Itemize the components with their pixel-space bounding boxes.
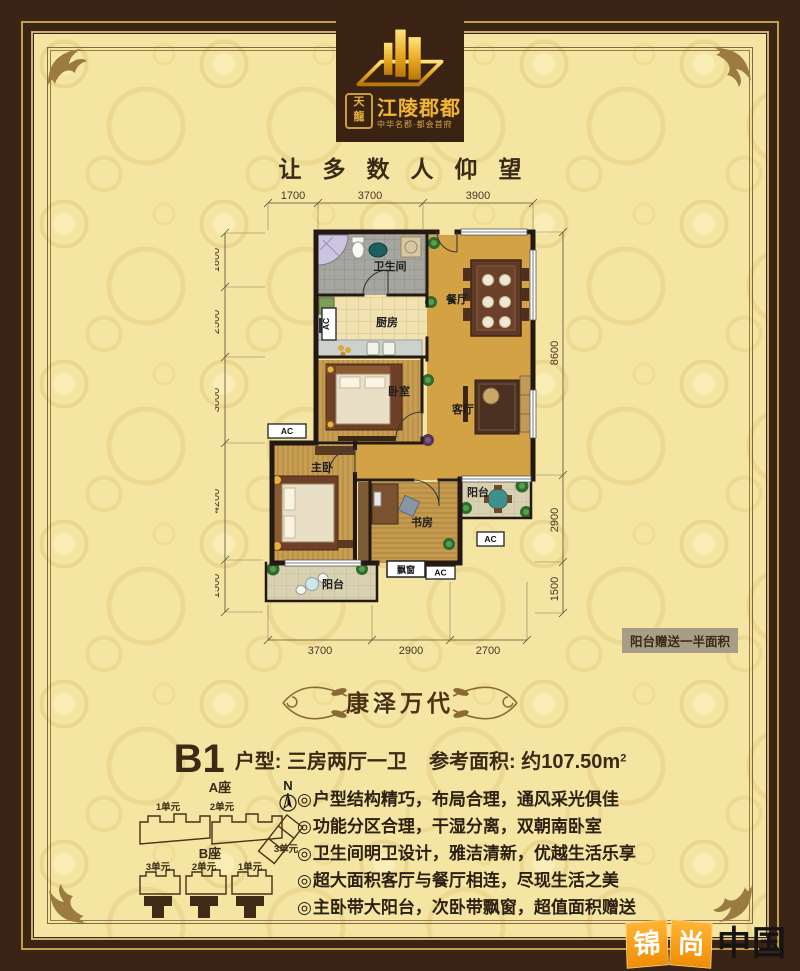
dim-top-3: 3900: [466, 190, 490, 202]
unit-type: 户型: 三房两厅一卫: [235, 751, 407, 773]
block-b-unit-3: 1单元: [238, 861, 263, 873]
dim-left-5: 1500: [215, 574, 222, 598]
compass-north-label: N: [283, 778, 292, 793]
room-label-balcony-right: 阳台: [467, 485, 489, 499]
feature-bullet-icon: ◎: [297, 898, 312, 917]
feature-item: ◎功能分区合理，干湿分离，双朝南卧室: [297, 813, 636, 840]
dim-right-2: 2900: [549, 508, 561, 532]
corner-ornament-icon: [711, 45, 755, 89]
room-label-balcony-left: 阳台: [322, 577, 344, 591]
ac-label: AC: [281, 426, 293, 436]
block-a-unit-3: 3单元: [274, 843, 299, 855]
corner-ornament-icon: [45, 45, 89, 89]
section-title-ornament: 康泽万代: [275, 674, 525, 732]
slogan: 让多数人仰望: [0, 150, 800, 184]
feature-bullet-icon: ◎: [297, 844, 312, 863]
room-label-living: 客厅: [451, 402, 474, 416]
feature-item: ◎超大面积客厅与餐厅相连，尽现生活之美: [297, 867, 636, 894]
feature-bullet-icon: ◎: [297, 817, 312, 836]
dim-right-1: 8600: [549, 341, 561, 365]
room-label-master: 主卧: [311, 460, 333, 474]
block-a-label: A座: [209, 780, 231, 795]
dim-left-2: 2500: [215, 310, 222, 334]
unit-code: B1: [174, 737, 225, 781]
dim-right-3: 1500: [549, 577, 561, 601]
feature-bullet-icon: ◎: [297, 790, 312, 809]
feature-text: 户型结构精巧，布局合理，通风采光俱佳: [313, 790, 619, 809]
corner-ornament-icon: [711, 882, 755, 926]
logo-banner: 天 龍 江陵郡都 中华名郡·都会首府: [336, 0, 464, 142]
highlighted-units: [144, 896, 264, 918]
dim-left-3: 3000: [215, 388, 222, 412]
dim-left-4: 4200: [215, 489, 222, 513]
dim-bottom-3: 2700: [476, 645, 500, 657]
ac-label: AC: [321, 318, 331, 330]
room-label-kitchen: 厨房: [376, 315, 398, 329]
brand-subtitle: 中华名郡·都会首府: [377, 119, 463, 130]
feature-text: 超大面积客厅与餐厅相连，尽现生活之美: [313, 871, 619, 890]
unit-area: 参考面积: 约107.50m: [429, 751, 620, 773]
block-a-unit-2: 2单元: [210, 801, 235, 813]
room-label-dining: 餐厅: [445, 292, 468, 306]
ac-label: AC: [434, 568, 446, 578]
corner-ornament-icon: [45, 882, 89, 926]
feature-item: ◎卫生间明卫设计，雅洁清新，优越生活乐享: [297, 840, 636, 867]
site-plan: N A座 1单元 2单元 3单元 B座 3单元 2单元 1单元: [128, 778, 308, 936]
unit-area-sup: 2: [620, 753, 626, 765]
watermark-rest: 中国: [717, 922, 787, 966]
watermark: 锦 尚 中国: [626, 921, 787, 967]
feature-text: 主卧带大阳台，次卧带飘窗，超值面积赠送: [313, 898, 636, 917]
dim-bottom-1: 3700: [308, 645, 332, 657]
block-b-label: B座: [199, 846, 221, 861]
buildings-logo-icon: [352, 22, 448, 90]
dim-left-1: 1800: [215, 248, 222, 272]
dim-top-2: 3700: [358, 190, 382, 202]
room-label-study: 书房: [411, 515, 433, 529]
feature-text: 卫生间明卫设计，雅洁清新，优越生活乐享: [313, 844, 636, 863]
poster: 天 龍 江陵郡都 中华名郡·都会首府 让多数人仰望: [0, 0, 800, 971]
room-label-bay-window: 飘窗: [397, 564, 415, 575]
feature-item: ◎主卧带大阳台，次卧带飘窗，超值面积赠送: [297, 894, 636, 921]
balcony-note: 阳台赠送一半面积: [622, 628, 738, 653]
watermark-char-1: 锦: [625, 919, 669, 969]
watermark-char-2: 尚: [669, 919, 713, 969]
dim-top-1: 1700: [281, 190, 305, 202]
brand-seal: 天 龍: [345, 93, 373, 129]
compass: N: [280, 778, 296, 811]
room-label-bathroom: 卫生间: [374, 259, 407, 273]
section-title: 康泽万代: [346, 690, 454, 716]
ac-label: AC: [484, 534, 496, 544]
floor-plan: AC AC AC AC 卫生间 厨房 餐厅 卧室 客厅 主卧 书房 阳台 阳台 …: [215, 190, 575, 665]
seal-char-top: 天: [347, 95, 371, 110]
feature-item: ◎户型结构精巧，布局合理，通风采光俱佳: [297, 786, 636, 813]
block-b-unit-2: 2单元: [192, 861, 217, 873]
block-a-unit-1: 1单元: [156, 801, 181, 813]
feature-list: ◎户型结构精巧，布局合理，通风采光俱佳 ◎功能分区合理，干湿分离，双朝南卧室 ◎…: [297, 786, 636, 921]
seal-char-bottom: 龍: [347, 110, 371, 125]
unit-info: B1户型: 三房两厅一卫参考面积: 约107.50m2: [0, 737, 800, 782]
feature-text: 功能分区合理，干湿分离，双朝南卧室: [313, 817, 602, 836]
brand-name: 江陵郡都: [377, 92, 463, 121]
room-label-bedroom: 卧室: [388, 384, 410, 398]
block-b-unit-1: 3单元: [146, 861, 171, 873]
dim-bottom-2: 2900: [399, 645, 423, 657]
feature-bullet-icon: ◎: [297, 871, 312, 890]
